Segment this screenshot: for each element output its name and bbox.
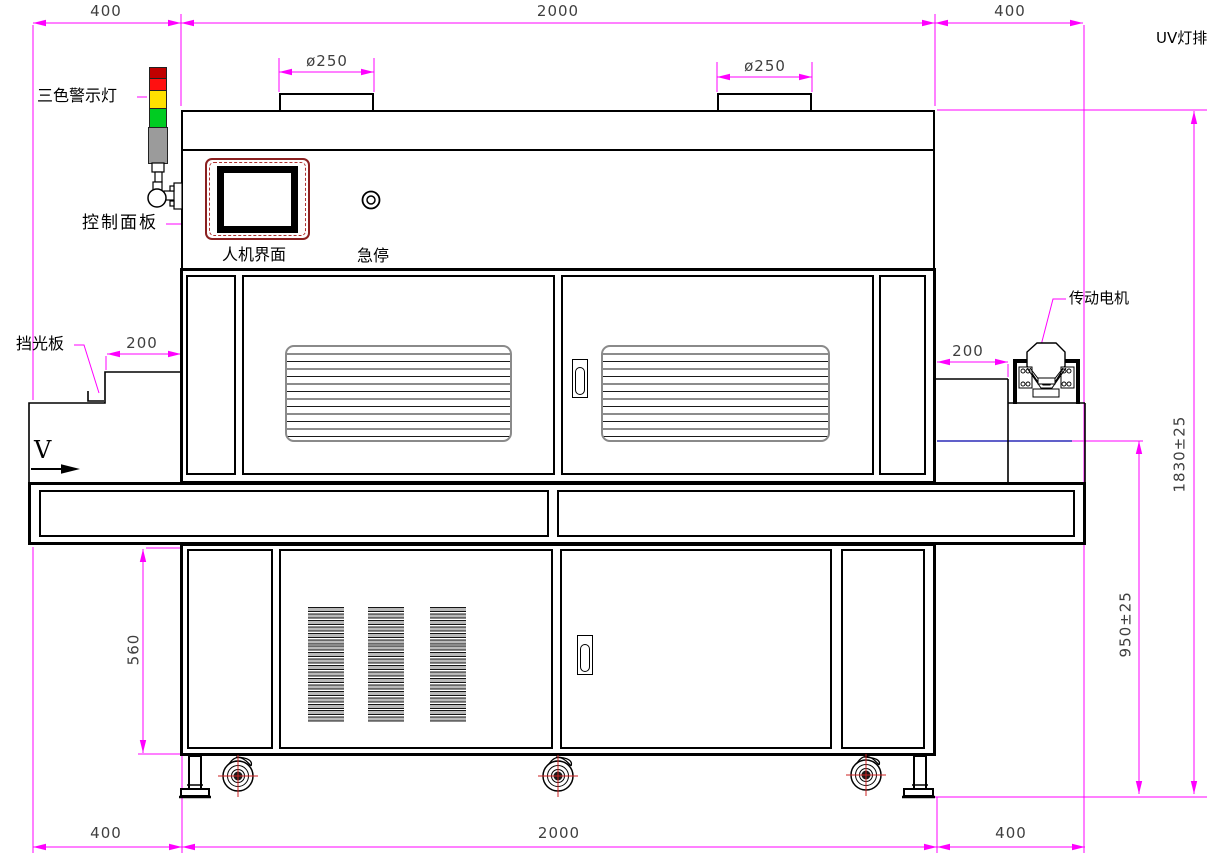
uv-machine-drawing: 三色警示灯 控制面板 人机界面 急停 挡光板 传动电机 UV灯排 V 400 2…	[0, 0, 1211, 861]
drive-motor-label: 传动电机	[1069, 291, 1129, 306]
dim-cabinet-560: 560	[127, 630, 142, 670]
leveling-foot-right	[902, 756, 935, 797]
caster-left	[218, 755, 258, 797]
outlet-shelf	[935, 379, 1085, 482]
light-shield-label: 挡光板	[16, 336, 64, 352]
dim-bottom-right-400: 400	[991, 826, 1031, 841]
leveling-foot-left	[179, 756, 211, 797]
dim-belt-950: 950±25	[1119, 594, 1134, 658]
light-shield-plate	[88, 391, 104, 401]
caster-right	[846, 754, 886, 796]
dim-outlet-200: 200	[948, 344, 988, 359]
flow-direction-arrow	[31, 464, 80, 474]
direction-label: V	[34, 438, 51, 462]
dim-top-2000: 2000	[528, 4, 588, 19]
ball-joint	[148, 189, 166, 207]
warning-light-label: 三色警示灯	[37, 88, 117, 104]
dim-vent-dia-left: ø250	[302, 54, 352, 69]
dim-bottom-2000: 2000	[529, 826, 589, 841]
structure-detail-layer	[0, 0, 1211, 861]
dim-top-right-400: 400	[990, 4, 1030, 19]
caster-middle	[538, 755, 578, 797]
control-panel-label: 控制面板	[82, 215, 158, 232]
dim-total-1830: 1830±25	[1173, 421, 1188, 493]
estop-button[interactable]	[363, 192, 380, 209]
dim-vent-dia-right: ø250	[740, 59, 790, 74]
stack-light-mount	[148, 163, 182, 209]
dim-inlet-200: 200	[122, 336, 162, 351]
dim-top-left-400: 400	[86, 4, 126, 19]
drive-motor	[1015, 343, 1078, 404]
inlet-shelf	[29, 372, 181, 482]
estop-label: 急停	[357, 248, 389, 264]
dim-bottom-left-400: 400	[86, 826, 126, 841]
hmi-label: 人机界面	[222, 247, 286, 263]
uv-lamp-bank-label: UV灯排	[1156, 31, 1207, 46]
